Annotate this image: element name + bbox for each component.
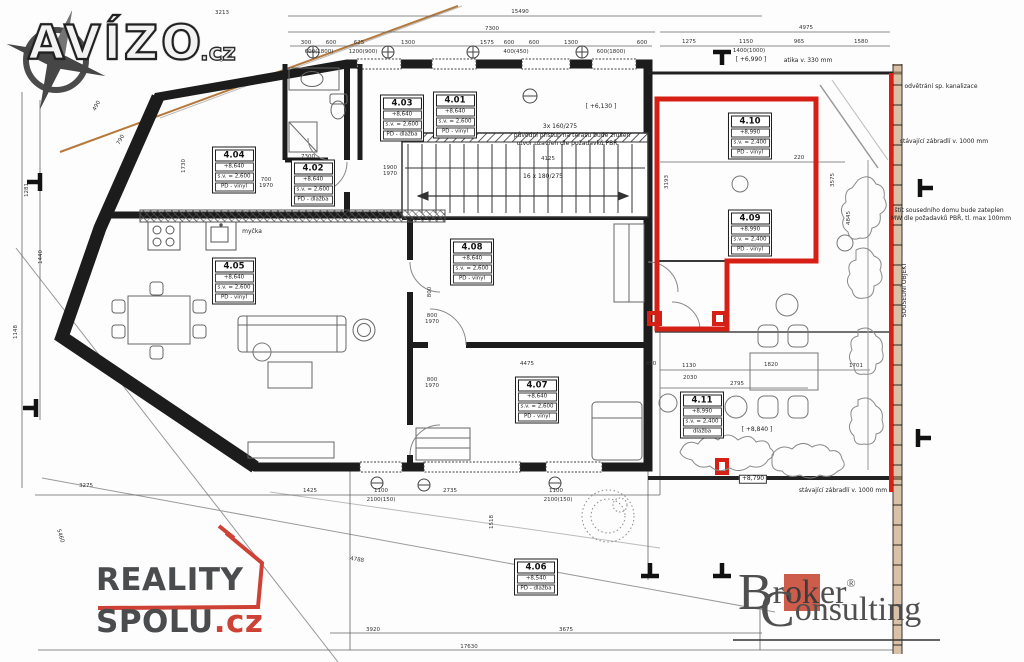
avizo-logo-tld: .cz [200, 40, 236, 66]
dimension-label: 220 [794, 155, 805, 161]
dimension-label: 600(1800) [597, 49, 626, 55]
room-label-4.01: 4.01+8,640s.v. = 2,600PD - vinyl [433, 92, 477, 139]
room-info-row: s.v. = 2,600 [214, 172, 253, 181]
room-info-row: s.v. = 2,600 [435, 117, 474, 126]
room-info-row: PD - vinyl [214, 293, 253, 302]
dimension-label: 4788 [350, 556, 365, 564]
room-info-row: +8,990 [730, 225, 769, 234]
room-label-4.03: 4.03+8,640s.v. = 2,600PD - dlažba [380, 95, 424, 142]
room-number: 4.07 [517, 379, 556, 391]
room-info-row: +8,640 [435, 107, 474, 116]
note-label: štít sousedního domu bude zateplen [894, 208, 1003, 215]
dimension-label: 1820 [764, 362, 778, 368]
dimension-label: 1425 [303, 488, 317, 494]
dimension-label: 300 [301, 40, 312, 46]
room-label-4.07: 4.07+8,640s.v. = 2,600PD - vinyl [515, 377, 559, 424]
note-label: odvětrání sp. kanalizace [904, 84, 977, 91]
dimension-label: 1970 [259, 183, 273, 189]
broker-logo-line2: Consulting [760, 590, 921, 630]
note-label: SOUSEDNÍ OBJEKT [902, 263, 909, 318]
dimension-label: 400(450) [503, 49, 528, 55]
room-info-row: dlažba [682, 427, 721, 436]
room-info-row: s.v. = 2,600 [214, 283, 253, 292]
room-label-4.11: 4.11+8,990s.v. = 2,400dlažba [680, 392, 724, 439]
dimension-label: 600(1800) [305, 49, 334, 55]
room-info-row: s.v. = 2,400 [682, 417, 721, 426]
dimension-label: 3275 [79, 483, 93, 489]
dimension-label: 1200(900) [349, 49, 378, 55]
dimension-label: 1970 [383, 171, 397, 177]
room-info-row: +8,640 [214, 273, 253, 282]
dimension-label: 790 [116, 134, 126, 146]
room-number: 4.06 [517, 561, 556, 573]
dimension-label: 800 [427, 287, 433, 298]
room-label-4.05: 4.05+8,640s.v. = 2,600PD - vinyl [212, 258, 256, 305]
dimension-label: 1400(1000) [733, 48, 765, 54]
room-info-row: s.v. = 2,400 [730, 138, 769, 147]
dimension-label: 1130 [682, 363, 696, 369]
reality-logo-tld: .cz [214, 604, 264, 640]
note-label: [ +6,130 ] [586, 104, 617, 111]
dimension-label: 965 [794, 39, 805, 45]
dimension-label: 2100(150) [367, 497, 396, 503]
dimension-label: 7300 [485, 26, 499, 32]
avizo-logo-text: AVÍZO [28, 16, 204, 71]
room-info-row: PD - dlažba [517, 584, 556, 593]
reality-logo-line2: SPOLU.cz [96, 604, 263, 640]
room-info-row: +8,990 [682, 407, 721, 416]
dimension-label: 4975 [799, 25, 813, 31]
room-info-row: PD - dlažba [382, 130, 421, 139]
note-label: otvor uzavřen dle požadavků PBŘ [517, 141, 618, 148]
floor-plan-page: 1549032133546730049753006006251300157560… [0, 0, 1024, 662]
note-label: myčka [242, 229, 262, 236]
room-info-row: PD - vinyl [452, 274, 491, 283]
dimension-label: 2795 [730, 381, 744, 387]
dimension-label: 4125 [541, 156, 555, 162]
dimension-label: 2100(150) [544, 497, 573, 503]
dimension-label: 1701 [849, 363, 863, 369]
room-label-4.02: 4.02+8,640s.v. = 2,600PD - dlažba [291, 160, 335, 207]
room-info-row: +8,640 [517, 392, 556, 401]
room-info-row: PD - vinyl [214, 182, 253, 191]
room-number: 4.11 [682, 394, 721, 406]
dimension-label: 1575 [480, 40, 494, 46]
broker-consulting-watermark: Broker® Consulting [732, 558, 942, 648]
room-info-row: +8,640 [382, 110, 421, 119]
dimension-label: 1300 [564, 40, 578, 46]
dimension-label: 1300 [401, 40, 415, 46]
note-label: původní přístup na terasu bude zrušen [514, 133, 630, 140]
dimension-label: 625 [354, 40, 365, 46]
dimension-label: 17630 [460, 644, 478, 650]
dimension-label: 15490 [511, 9, 529, 15]
room-number: 4.04 [214, 149, 253, 161]
note-label: stávající zábradlí v. 1000 mm [799, 488, 887, 495]
note-label: stávající zábradlí v. 1000 mm [900, 139, 988, 146]
room-number: 4.08 [452, 241, 491, 253]
note-label: MW dle požadavků PBŘ, tl. max 100mm [891, 216, 1011, 223]
dimension-label: 3193 [664, 175, 670, 189]
dimension-label: 1275 [682, 39, 696, 45]
room-info-row: PD - vinyl [730, 245, 769, 254]
dimension-label: 600 [529, 40, 540, 46]
room-info-row: +8,640 [293, 175, 332, 184]
note-label: 16 x 180/275 [523, 174, 563, 181]
room-number: 4.03 [382, 97, 421, 109]
dimension-label: 5460 [55, 528, 65, 543]
dimension-label: 3920 [366, 627, 380, 633]
dimension-label: 1970 [425, 319, 439, 325]
dimension-label: 1730 [181, 159, 187, 173]
dimension-label: 1518 [489, 515, 495, 529]
room-label-4.04: 4.04+8,640s.v. = 2,600PD - vinyl [212, 147, 256, 194]
note-label: [ +8,840 ] [742, 427, 773, 434]
room-info-row: PD - dlažba [293, 195, 332, 204]
room-number: 4.02 [293, 162, 332, 174]
room-number: 4.09 [730, 212, 769, 224]
avizo-watermark: AVÍZO .cz [4, 4, 254, 94]
reality-spolu-watermark: REALITY SPOLU.cz [88, 524, 278, 649]
room-number: 4.10 [730, 115, 769, 127]
dimension-label: 3575 [830, 173, 836, 187]
dimension-label: 600 [326, 40, 337, 46]
dimension-label: 2735 [443, 488, 457, 494]
dimension-label: 600 [504, 40, 515, 46]
dimension-label: 1150 [739, 39, 753, 45]
room-info-row: s.v. = 2,600 [517, 402, 556, 411]
room-info-row: s.v. = 2,400 [730, 235, 769, 244]
dimension-label: 3675 [559, 627, 573, 633]
room-info-row: s.v. = 2,600 [293, 185, 332, 194]
room-info-row: +8,990 [730, 128, 769, 137]
room-info-row: PD - vinyl [730, 148, 769, 157]
dimension-label: 4845 [846, 211, 852, 225]
dimension-label: 2030 [683, 375, 697, 381]
dimension-label: 1970 [425, 383, 439, 389]
note-label: [ +6,990 ] [736, 57, 767, 64]
room-info-row: PD - vinyl [517, 412, 556, 421]
room-info-row: s.v. = 2,600 [382, 120, 421, 129]
room-number: 4.01 [435, 94, 474, 106]
dimension-label: 1100 [549, 488, 563, 494]
room-label-4.09: 4.09+8,990s.v. = 2,400PD - vinyl [728, 210, 772, 257]
room-info-row: PD - vinyl [435, 127, 474, 136]
dimension-label: 1148 [13, 325, 19, 339]
room-label-4.10: 4.10+8,990s.v. = 2,400PD - vinyl [728, 113, 772, 160]
dimension-label: 1281 [24, 183, 30, 197]
dimension-label: 600 [637, 40, 648, 46]
room-info-row: +8,540 [517, 574, 556, 583]
reality-logo-line1: REALITY [96, 562, 243, 598]
note-label: 3x 160/275 [543, 124, 577, 131]
room-number: 4.05 [214, 260, 253, 272]
dimension-label: 1100 [374, 488, 388, 494]
dimension-label: 450 [646, 361, 657, 367]
note-label: atika v. 330 mm [784, 58, 833, 65]
note-label: +8,790 [739, 475, 767, 484]
dimension-label: 1580 [854, 39, 868, 45]
room-info-row: +8,640 [214, 162, 253, 171]
room-label-4.06: 4.06+8,540PD - dlažba [514, 559, 558, 596]
dimension-label: 1440 [38, 250, 44, 264]
room-info-row: s.v. = 2,600 [452, 264, 491, 273]
room-label-4.08: 4.08+8,640s.v. = 2,600PD - vinyl [450, 239, 494, 286]
room-info-row: +8,640 [452, 254, 491, 263]
dimension-label: 4475 [520, 361, 534, 367]
